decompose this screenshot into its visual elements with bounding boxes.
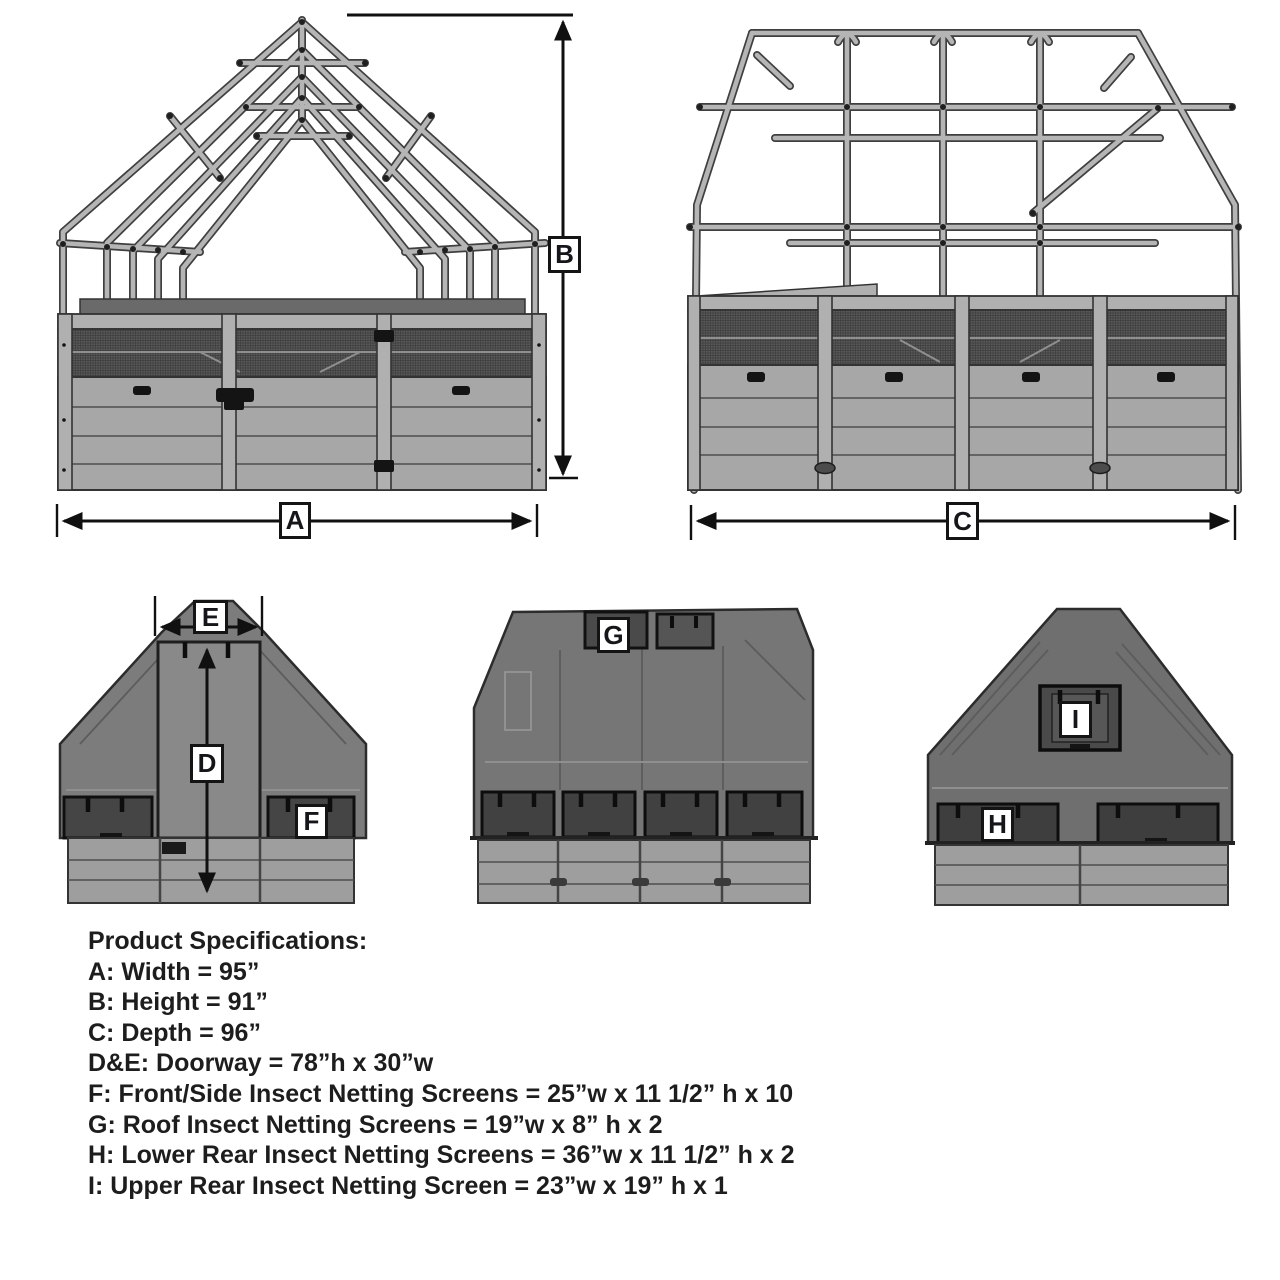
screen-label-upper-rear-i: I bbox=[1059, 701, 1092, 738]
dim-label-width-a: A bbox=[279, 502, 311, 539]
screen-label-roof-g: G bbox=[597, 617, 630, 653]
product-spec-diagram: A B C E D F G I H Product Specifications… bbox=[0, 0, 1280, 1280]
dim-label-depth-c: C bbox=[946, 502, 979, 540]
side-view-drawing bbox=[687, 33, 1241, 540]
spec-line-g: G: Roof Insect Netting Screens = 19”w x … bbox=[88, 1110, 795, 1141]
front-base bbox=[58, 299, 546, 490]
covered-rear-view bbox=[925, 609, 1235, 905]
product-specifications: Product Specifications: A: Width = 95” B… bbox=[88, 926, 795, 1201]
spec-line-c: C: Depth = 96” bbox=[88, 1018, 795, 1049]
spec-line-h: H: Lower Rear Insect Netting Screens = 3… bbox=[88, 1140, 795, 1171]
covered-rear-base bbox=[935, 845, 1228, 905]
screen-label-lower-rear-h: H bbox=[981, 807, 1014, 842]
spec-line-i: I: Upper Rear Insect Netting Screen = 23… bbox=[88, 1171, 795, 1202]
dim-label-door-height-d: D bbox=[190, 744, 224, 783]
spec-line-a: A: Width = 95” bbox=[88, 957, 795, 988]
covered-side-base bbox=[478, 840, 810, 903]
spec-line-f: F: Front/Side Insect Netting Screens = 2… bbox=[88, 1079, 795, 1110]
dim-label-door-width-e: E bbox=[193, 600, 228, 634]
spec-line-b: B: Height = 91” bbox=[88, 987, 795, 1018]
screen-label-front-f: F bbox=[295, 804, 328, 839]
covered-front-base bbox=[68, 838, 354, 903]
covered-side-view bbox=[470, 609, 818, 903]
front-view-drawing bbox=[57, 15, 578, 537]
specs-title: Product Specifications: bbox=[88, 926, 795, 957]
doorway-outline bbox=[158, 642, 260, 838]
side-base bbox=[688, 284, 1238, 490]
dim-label-height-b: B bbox=[548, 236, 581, 273]
spec-line-de: D&E: Doorway = 78”h x 30”w bbox=[88, 1048, 795, 1079]
